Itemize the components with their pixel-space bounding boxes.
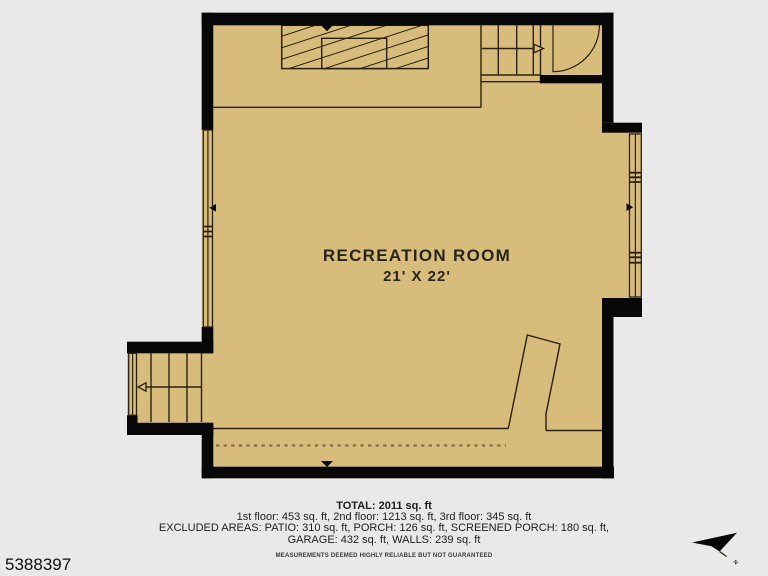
compass-n-label: N <box>732 559 739 566</box>
window-stair-bumpout <box>129 353 137 415</box>
window-right-bay <box>630 134 642 297</box>
room-name-label: RECREATION ROOM <box>323 246 511 266</box>
floorplan-page: N RECREATION ROOM 21' X 22' TOTAL: 2011 … <box>0 0 768 576</box>
floor-plan-canvas: N <box>0 0 768 576</box>
hatched-storage-area <box>282 25 429 68</box>
excluded-areas-line-2: GARAGE: 432 sq. ft, WALLS: 239 sq. ft <box>0 535 768 546</box>
window-left <box>203 130 212 327</box>
listing-id: 5388397 <box>5 555 71 575</box>
room-dimensions-label: 21' X 22' <box>383 268 451 285</box>
excluded-areas-line-1: EXCLUDED AREAS: PATIO: 310 sq. ft, PORCH… <box>0 523 768 534</box>
disclaimer-line: MEASUREMENTS DEEMED HIGHLY RELIABLE BUT … <box>0 553 768 559</box>
area-summary: TOTAL: 2011 sq. ft 1st floor: 453 sq. ft… <box>0 501 768 559</box>
